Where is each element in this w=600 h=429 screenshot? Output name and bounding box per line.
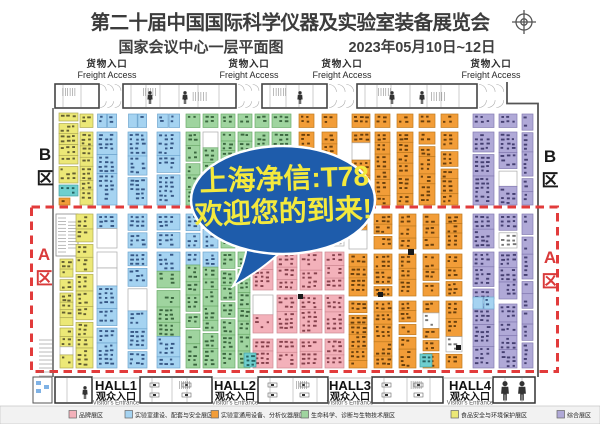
- svg-text:食品安全与环境保护展区: 食品安全与环境保护展区: [461, 412, 527, 420]
- svg-text:货物入口: 货物入口: [469, 58, 511, 70]
- svg-text:货物入口: 货物入口: [85, 58, 127, 70]
- svg-text:Visitor's Entrance: Visitor's Entrance: [327, 401, 374, 407]
- svg-text:区: 区: [36, 269, 53, 288]
- svg-text:Freight Access: Freight Access: [77, 70, 137, 80]
- svg-text:货物入口: 货物入口: [320, 58, 362, 70]
- svg-text:HALL1: HALL1: [95, 378, 137, 393]
- svg-text:A: A: [38, 245, 50, 264]
- svg-text:Freight Access: Freight Access: [219, 70, 279, 80]
- svg-text:HALL2: HALL2: [214, 378, 256, 393]
- svg-text:综合展区: 综合展区: [567, 412, 591, 420]
- svg-text:生命科学、诊断与生物技术展区: 生命科学、诊断与生物技术展区: [311, 412, 395, 420]
- svg-text:上海净信:T78: 上海净信:T78: [199, 160, 370, 197]
- svg-text:实验室建设、配套与安全展区: 实验室建设、配套与安全展区: [135, 412, 213, 420]
- svg-text:Visitor's Entrance: Visitor's Entrance: [93, 401, 140, 407]
- svg-text:欢迎您的到来!: 欢迎您的到来!: [193, 192, 372, 230]
- svg-text:A: A: [544, 248, 556, 267]
- svg-text:Freight Access: Freight Access: [461, 70, 521, 80]
- svg-text:区: 区: [542, 272, 559, 291]
- svg-text:Visitor's Entrance: Visitor's Entrance: [212, 401, 259, 407]
- svg-text:实验室通用设备、分析仪器展区: 实验室通用设备、分析仪器展区: [221, 412, 305, 420]
- svg-text:B: B: [39, 145, 51, 164]
- svg-text:B: B: [544, 147, 556, 166]
- svg-text:Visitor's Entrance: Visitor's Entrance: [447, 401, 494, 407]
- svg-text:第二十届中国国际科学仪器及实验室装备展览会: 第二十届中国国际科学仪器及实验室装备展览会: [90, 11, 490, 34]
- svg-text:2023年05月10日~12日: 2023年05月10日~12日: [348, 38, 495, 56]
- svg-text:区: 区: [542, 171, 559, 190]
- svg-text:货物入口: 货物入口: [227, 58, 269, 70]
- svg-text:Freight Access: Freight Access: [312, 70, 372, 80]
- svg-text:品牌展区: 品牌展区: [79, 412, 103, 420]
- svg-text:区: 区: [37, 169, 54, 188]
- svg-text:HALL3: HALL3: [329, 378, 371, 393]
- svg-text:HALL4: HALL4: [449, 378, 492, 393]
- svg-text:国家会议中心一层平面图: 国家会议中心一层平面图: [118, 38, 283, 56]
